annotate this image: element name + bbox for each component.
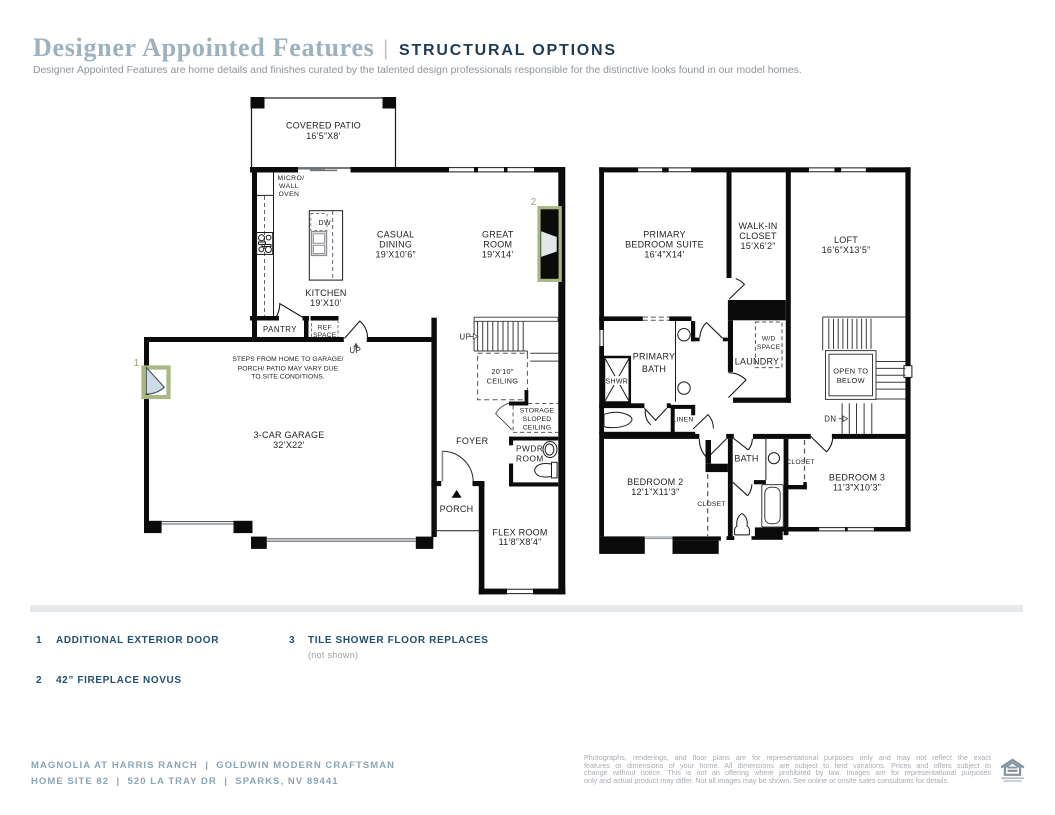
svg-text:3-CAR GARAGE: 3-CAR GARAGE [253, 430, 324, 440]
svg-text:CEILING: CEILING [487, 377, 519, 386]
svg-text:TO SITE CONDITIONS.: TO SITE CONDITIONS. [251, 374, 325, 381]
svg-text:16’5”X8’: 16’5”X8’ [306, 131, 341, 141]
svg-text:2: 2 [531, 196, 537, 208]
svg-text:STORAGE: STORAGE [520, 408, 555, 415]
svg-text:LAUNDRY: LAUNDRY [735, 357, 780, 367]
svg-text:ROOM: ROOM [516, 454, 544, 464]
svg-text:PRIMARY: PRIMARY [633, 352, 676, 362]
svg-text:BATH: BATH [642, 364, 666, 374]
svg-text:DW: DW [319, 220, 332, 227]
svg-text:BEDROOM 3: BEDROOM 3 [829, 473, 885, 483]
svg-text:CLOSET: CLOSET [786, 459, 814, 466]
svg-text:MICRO/: MICRO/ [278, 175, 305, 182]
svg-text:BEDROOM 2: BEDROOM 2 [627, 477, 683, 487]
svg-text:SPACE: SPACE [757, 344, 781, 351]
svg-text:W/D: W/D [762, 336, 776, 343]
svg-text:16’4”X14’: 16’4”X14’ [644, 250, 684, 260]
svg-text:BELOW: BELOW [837, 376, 865, 385]
svg-text:CLOSET: CLOSET [697, 501, 725, 508]
svg-text:11’3”X10’3”: 11’3”X10’3” [833, 483, 881, 493]
svg-text:16’6”X13’5”: 16’6”X13’5” [822, 245, 871, 255]
svg-text:SHWR: SHWR [606, 379, 629, 386]
svg-text:1: 1 [134, 357, 140, 369]
svg-text:19’X10’: 19’X10’ [310, 298, 342, 308]
svg-text:GREAT: GREAT [482, 230, 514, 240]
svg-text:FOYER: FOYER [456, 436, 489, 446]
svg-text:CEILING: CEILING [523, 425, 552, 432]
svg-text:11’8”X8’4”: 11’8”X8’4” [499, 537, 542, 547]
svg-text:PRIMARY: PRIMARY [643, 230, 686, 240]
svg-text:PANTRY: PANTRY [263, 325, 297, 334]
svg-text:LOFT: LOFT [834, 235, 858, 245]
svg-text:15’X6’2”: 15’X6’2” [740, 241, 775, 251]
svg-text:LINEN: LINEN [672, 417, 693, 424]
svg-text:CLOSET: CLOSET [739, 231, 777, 241]
svg-text:OVEN: OVEN [279, 191, 300, 198]
svg-text:KITCHEN: KITCHEN [305, 288, 346, 298]
svg-text:ROOM: ROOM [483, 240, 512, 250]
svg-text:DINING: DINING [379, 240, 412, 250]
svg-text:19’X14’: 19’X14’ [482, 250, 514, 260]
svg-text:SLOPED: SLOPED [523, 416, 552, 423]
svg-text:32’X22’: 32’X22’ [273, 440, 305, 450]
svg-text:UP: UP [350, 346, 362, 355]
svg-text:PORCH/ PATIO MAY VARY DUE: PORCH/ PATIO MAY VARY DUE [238, 366, 339, 373]
svg-text:UP: UP [460, 333, 472, 342]
svg-text:DN: DN [824, 415, 836, 424]
svg-text:19’X10’6”: 19’X10’6” [375, 250, 415, 260]
svg-text:BEDROOM SUITE: BEDROOM SUITE [625, 240, 704, 250]
svg-text:BATH: BATH [734, 454, 758, 464]
svg-text:COVERED PATIO: COVERED PATIO [286, 121, 361, 131]
svg-text:STEPS FROM HOME TO GARAGE/: STEPS FROM HOME TO GARAGE/ [232, 356, 343, 363]
svg-text:CASUAL: CASUAL [377, 230, 415, 240]
svg-text:20’10”: 20’10” [491, 367, 514, 376]
svg-text:WALL: WALL [279, 183, 299, 190]
svg-text:OPEN TO: OPEN TO [833, 367, 868, 376]
svg-text:WALK-IN: WALK-IN [739, 221, 778, 231]
svg-text:PWDR: PWDR [516, 444, 543, 454]
svg-text:PORCH: PORCH [440, 504, 474, 514]
svg-text:12’1”X11’3”: 12’1”X11’3” [631, 487, 679, 497]
svg-text:REF: REF [318, 325, 332, 332]
